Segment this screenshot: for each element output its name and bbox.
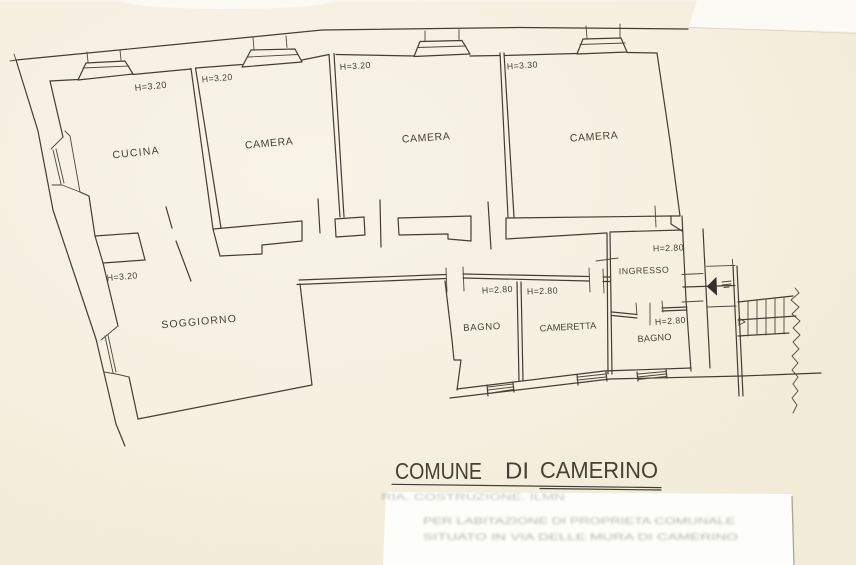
- svg-text:SITUATO IN VIA DELLE MURA DI C: SITUATO IN VIA DELLE MURA DI CAMERINO: [423, 532, 738, 542]
- svg-text:H=2.80: H=2.80: [653, 242, 684, 253]
- svg-text:BAGNO: BAGNO: [463, 321, 501, 334]
- svg-text:COMUNE: COMUNE: [395, 458, 482, 484]
- svg-text:PER LABITAZIONE DI PROPRIETA C: PER LABITAZIONE DI PROPRIETA COMUNALE: [423, 516, 735, 526]
- svg-text:H=2.80: H=2.80: [482, 284, 513, 296]
- svg-text:H=2.80: H=2.80: [527, 285, 558, 296]
- svg-text:INGRESSO: INGRESSO: [619, 265, 670, 277]
- svg-text:RIA. COSTRUZIONE. ILMN: RIA. COSTRUZIONE. ILMN: [381, 492, 565, 502]
- svg-text:DI: DI: [505, 458, 529, 484]
- svg-text:CAMERINO: CAMERINO: [540, 457, 658, 483]
